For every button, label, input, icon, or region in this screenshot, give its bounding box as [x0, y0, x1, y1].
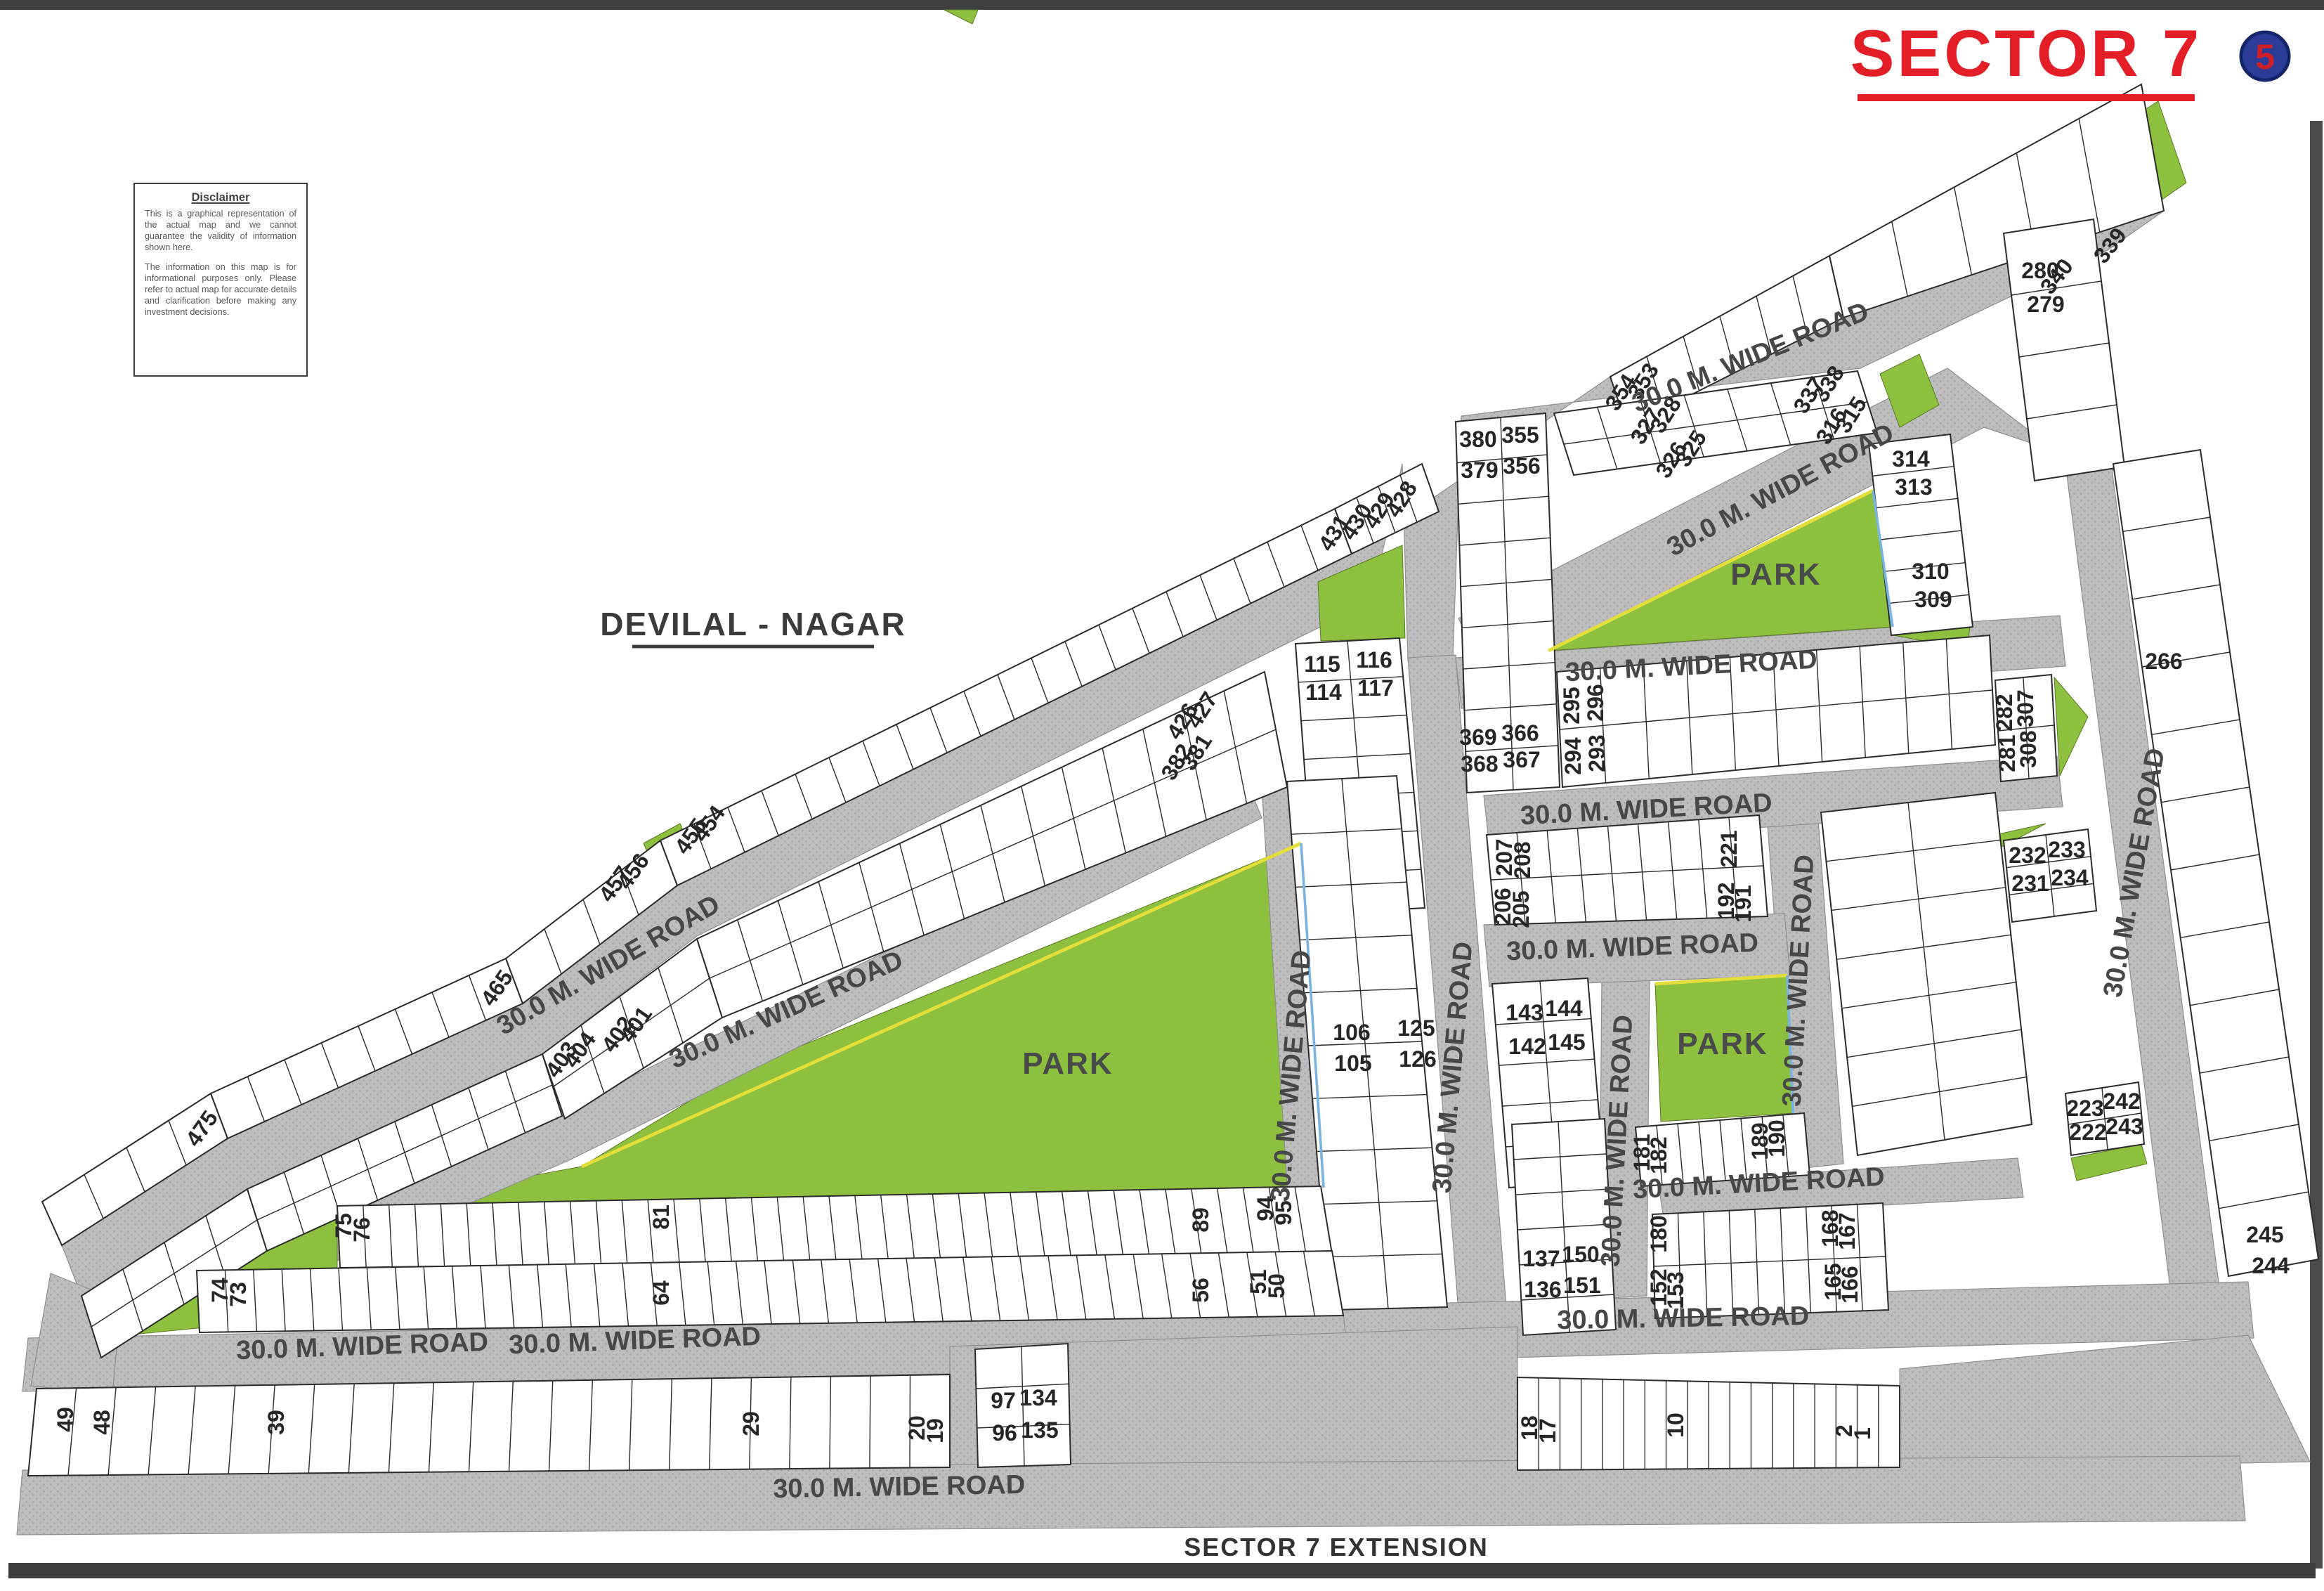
plot-number-355: 355 [1501, 422, 1539, 448]
plot-number-64: 64 [648, 1280, 674, 1306]
plot-map-page: 4754654574564554544314304294283543533403… [0, 0, 2324, 1591]
plot-number-166: 166 [1837, 1266, 1862, 1303]
extension-label: SECTOR 7 EXTENSION [1184, 1533, 1488, 1561]
plot-number-76: 76 [349, 1217, 374, 1242]
plot-number-221: 221 [1716, 830, 1742, 867]
plot-number-243: 243 [2106, 1114, 2143, 1139]
plot-number-245: 245 [2246, 1222, 2283, 1247]
plot-number-73: 73 [226, 1282, 251, 1307]
plot-number-135: 135 [1021, 1417, 1058, 1443]
plot-number-280: 280 [2021, 258, 2058, 283]
area-label: DEVILAL - NAGAR [600, 606, 906, 642]
plot-number-134: 134 [1019, 1385, 1057, 1410]
plot-number-95: 95 [1271, 1200, 1296, 1226]
disclaimer-box: Disclaimer This is a graphical represent… [133, 183, 308, 377]
road-label: 30.0 M. WIDE ROAD [1557, 1301, 1810, 1335]
plot-number-116: 116 [1356, 647, 1392, 673]
plot-number-309: 309 [1914, 587, 1952, 612]
plot-number-308: 308 [2016, 730, 2041, 767]
plot-number-125: 125 [1397, 1015, 1435, 1041]
plot-number-126: 126 [1399, 1046, 1436, 1072]
plot-number-296: 296 [1583, 684, 1608, 721]
plot-number-279: 279 [2027, 292, 2064, 317]
plot-number-96: 96 [992, 1420, 1017, 1446]
disclaimer-heading: Disclaimer [145, 191, 296, 204]
plot-number-266: 266 [2145, 649, 2182, 674]
plot-number-367: 367 [1503, 747, 1540, 772]
plot-number-380: 380 [1459, 427, 1496, 452]
plot-number-150: 150 [1562, 1242, 1599, 1267]
plot-number-48: 48 [89, 1410, 115, 1435]
plot-number-151: 151 [1563, 1273, 1600, 1298]
plot-number-222: 222 [2069, 1119, 2106, 1145]
page-title-underline [1858, 94, 2195, 101]
plot-number-145: 145 [1548, 1030, 1585, 1055]
plot-number-307: 307 [2013, 689, 2038, 727]
park-label: PARK [1677, 1027, 1768, 1061]
page-title: SECTOR 7 [1850, 16, 2202, 90]
plot-strip-outline [28, 1375, 950, 1476]
plot-number-191: 191 [1730, 885, 1756, 922]
plot-number-379: 379 [1461, 457, 1498, 483]
park-label: PARK [1022, 1046, 1113, 1081]
plot-number-223: 223 [2066, 1096, 2103, 1121]
disclaimer-paragraph-2: The information on this map is for infor… [145, 264, 296, 319]
plot-number-368: 368 [1461, 751, 1498, 777]
plot-number-39: 39 [263, 1410, 289, 1435]
plot-number-97: 97 [991, 1388, 1016, 1413]
plot-number-105: 105 [1334, 1051, 1371, 1076]
plot-number-314: 314 [1892, 446, 1930, 472]
disclaimer-paragraph-1: This is a graphical representation of th… [145, 209, 296, 254]
plot-number-369: 369 [1459, 725, 1496, 750]
plot-number-19: 19 [922, 1418, 948, 1443]
plot-number-142: 142 [1508, 1034, 1546, 1059]
plot-number-29: 29 [738, 1411, 764, 1436]
scan-edge-bottom [8, 1563, 2316, 1578]
plot-number-114: 114 [1305, 680, 1342, 705]
plot-number-293: 293 [1584, 734, 1610, 772]
plot-number-244: 244 [2252, 1253, 2290, 1278]
scan-edge-right [2310, 121, 2323, 1569]
scan-edge-top [0, 0, 2324, 10]
plot-number-144: 144 [1545, 996, 1583, 1021]
block-mid-east [1821, 793, 2032, 1155]
park-label: PARK [1730, 557, 1821, 592]
brand-badge-number: 5 [2255, 37, 2275, 77]
plot-number-310: 310 [1912, 559, 1949, 584]
plot-number-242: 242 [2103, 1089, 2140, 1114]
plot-number-137: 137 [1522, 1246, 1560, 1271]
plot-number-294: 294 [1560, 737, 1586, 775]
row-49 [28, 1375, 950, 1476]
plot-number-205: 205 [1508, 890, 1534, 928]
plot-number-49: 49 [53, 1407, 78, 1432]
plot-number-356: 356 [1503, 453, 1540, 479]
plot-number-1: 1 [1850, 1427, 1875, 1440]
plot-number-117: 117 [1357, 675, 1394, 701]
plot-number-234: 234 [2051, 865, 2089, 890]
plot-number-233: 233 [2048, 837, 2085, 862]
plot-number-10: 10 [1663, 1413, 1688, 1438]
plot-number-56: 56 [1188, 1278, 1213, 1303]
plot-number-167: 167 [1834, 1212, 1860, 1249]
plot-number-17: 17 [1535, 1418, 1560, 1443]
plot-number-50: 50 [1264, 1273, 1289, 1299]
map-canvas: 4754654574564554544314304294283543533403… [0, 0, 2324, 1591]
plot-number-106: 106 [1333, 1020, 1370, 1045]
plot-number-182: 182 [1646, 1136, 1671, 1174]
plot-number-313: 313 [1895, 474, 1932, 500]
plot-number-81: 81 [648, 1204, 674, 1230]
plot-number-89: 89 [1188, 1207, 1213, 1233]
plot-number-208: 208 [1510, 841, 1535, 878]
brand-badge-icon: 5 [2241, 32, 2289, 80]
plot-number-232: 232 [2009, 843, 2046, 868]
plot-number-143: 143 [1506, 1000, 1543, 1025]
plot-number-231: 231 [2011, 871, 2049, 896]
row-18 [1517, 1377, 1900, 1470]
plot-number-366: 366 [1501, 720, 1539, 746]
plot-number-180: 180 [1646, 1215, 1671, 1252]
plot-number-115: 115 [1304, 651, 1340, 677]
plot-number-190: 190 [1764, 1119, 1789, 1157]
plot-number-295: 295 [1559, 687, 1584, 724]
road-label: 30.0 M. WIDE ROAD [773, 1470, 1026, 1504]
plot-number-136: 136 [1524, 1277, 1561, 1302]
